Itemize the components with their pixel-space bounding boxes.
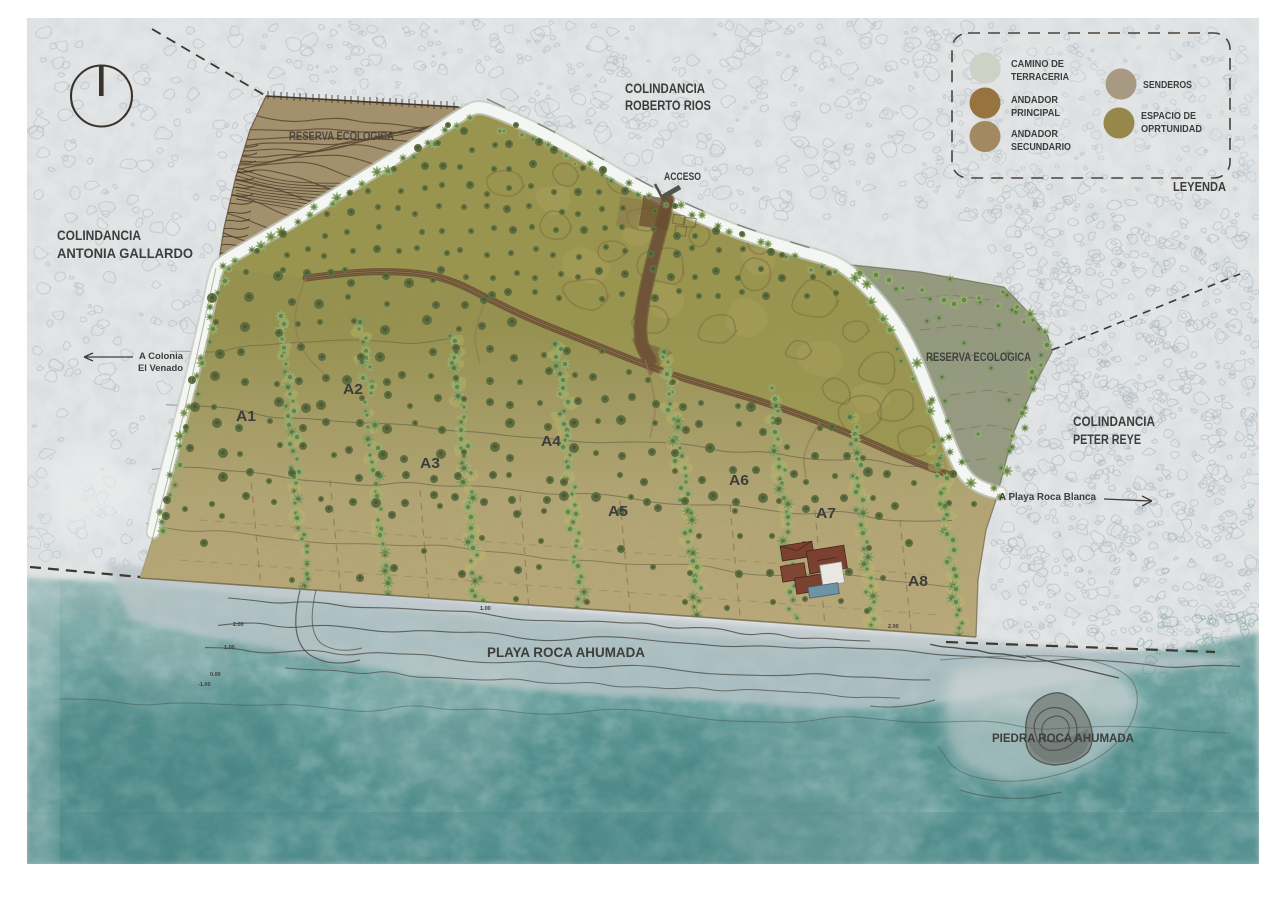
svg-text:A6: A6: [729, 472, 749, 489]
svg-text:PETER REYE: PETER REYE: [1073, 431, 1141, 447]
svg-text:El Venado: El Venado: [138, 363, 183, 374]
svg-text:OPRTUNIDAD: OPRTUNIDAD: [1141, 124, 1202, 135]
svg-text:A Colonia: A Colonia: [139, 351, 184, 362]
svg-text:COLINDANCIA: COLINDANCIA: [625, 81, 705, 96]
svg-text:RESERVA ECOLOGICA: RESERVA ECOLOGICA: [926, 352, 1031, 364]
svg-text:1.00: 1.00: [480, 606, 491, 612]
svg-text:TERRACERIA: TERRACERIA: [1011, 72, 1069, 83]
svg-text:ESPACIO DE: ESPACIO DE: [1141, 111, 1196, 122]
svg-text:SENDEROS: SENDEROS: [1143, 80, 1192, 91]
svg-text:A2: A2: [343, 381, 363, 398]
svg-text:RESERVA ECOLOGICA: RESERVA ECOLOGICA: [289, 131, 394, 143]
svg-text:A1: A1: [236, 408, 256, 425]
svg-text:2.00: 2.00: [888, 624, 899, 630]
svg-text:COLINDANCIA: COLINDANCIA: [57, 227, 141, 243]
svg-text:A7: A7: [816, 505, 836, 522]
svg-text:2.00: 2.00: [233, 622, 244, 628]
svg-text:A4: A4: [541, 433, 562, 450]
svg-text:ANTONIA GALLARDO: ANTONIA GALLARDO: [57, 245, 193, 261]
svg-text:SECUNDARIO: SECUNDARIO: [1011, 142, 1071, 153]
svg-text:CAMINO DE: CAMINO DE: [1011, 59, 1064, 70]
svg-text:ACCESO: ACCESO: [664, 171, 701, 183]
svg-text:1.00: 1.00: [224, 645, 235, 651]
svg-text:PRINCIPAL: PRINCIPAL: [1011, 108, 1060, 119]
svg-text:A5: A5: [608, 503, 628, 520]
svg-text:COLINDANCIA: COLINDANCIA: [1073, 413, 1155, 429]
svg-text:0.00: 0.00: [210, 672, 221, 678]
svg-text:A3: A3: [420, 455, 440, 472]
svg-text:ROBERTO RIOS: ROBERTO RIOS: [625, 98, 711, 113]
svg-text:ANDADOR: ANDADOR: [1011, 95, 1059, 106]
svg-text:PLAYA ROCA AHUMADA: PLAYA ROCA AHUMADA: [487, 645, 645, 660]
svg-text:PIEDRA ROCA AHUMADA: PIEDRA ROCA AHUMADA: [992, 731, 1134, 745]
svg-text:A Playa Roca Blanca: A Playa Roca Blanca: [999, 491, 1096, 503]
svg-text:LEYENDA: LEYENDA: [1173, 179, 1227, 194]
svg-text:-1.00: -1.00: [198, 682, 211, 688]
svg-text:A8: A8: [908, 573, 928, 590]
svg-text:ANDADOR: ANDADOR: [1011, 129, 1059, 140]
